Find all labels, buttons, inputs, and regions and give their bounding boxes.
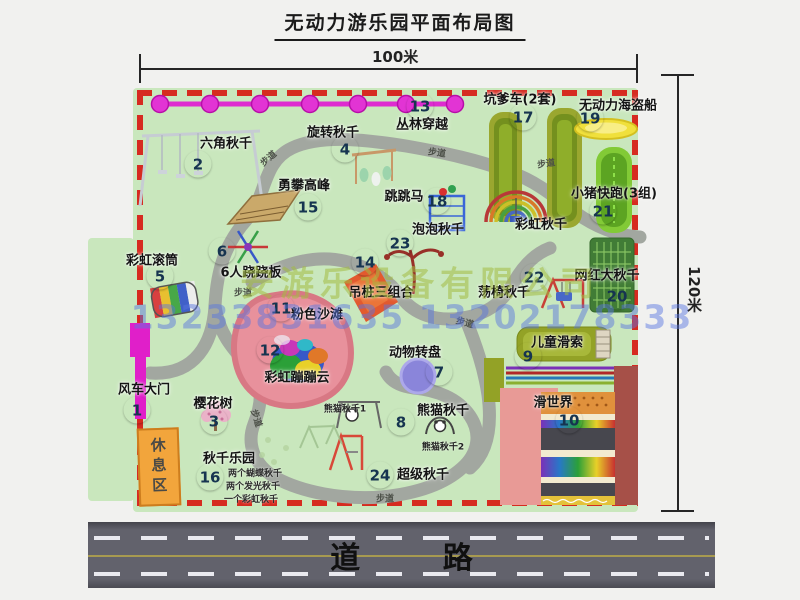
attraction-badge-21: 21 — [590, 198, 617, 225]
attraction-label-jump-horse: 跳跳马 — [384, 186, 423, 205]
attraction-badge-10: 10 — [556, 407, 583, 434]
attraction-label-pig-run: 小猪快跑(3组) — [571, 183, 657, 202]
park-ground-left-extension — [88, 238, 134, 501]
dimension-width-label: 100米 — [372, 46, 418, 67]
attraction-badge-19: 19 — [577, 105, 604, 132]
dimension-tick-right-top — [661, 74, 694, 76]
attraction-badge-23: 23 — [387, 230, 414, 257]
attraction-badge-16: 16 — [197, 464, 224, 491]
swing-park-note-2: 两个发光秋千 — [226, 479, 280, 492]
dimension-line-top — [140, 68, 638, 70]
dimension-tick-top-left — [139, 54, 141, 83]
attraction-label-hexagon-swing: 六角秋千 — [200, 133, 252, 152]
attraction-badge-8: 8 — [388, 409, 415, 436]
attraction-badge-12: 12 — [257, 337, 284, 364]
attraction-badge-6: 6 — [209, 238, 236, 265]
panda-swing-1-label: 熊猫秋千1 — [324, 402, 366, 415]
page-title: 无动力游乐园平面布局图 — [274, 7, 525, 41]
attraction-badge-24: 24 — [367, 462, 394, 489]
swing-park-note-1: 两个蝴蝶秋千 — [228, 466, 282, 479]
park-layout-map: 无动力游乐园平面布局图 100米 120米 — [0, 0, 800, 600]
attraction-label-animal-turntable: 动物转盘 — [389, 342, 441, 361]
dimension-line-right — [677, 75, 679, 512]
trail-label: 步道 — [427, 144, 447, 159]
rest-area-box: 休息区 — [137, 427, 182, 506]
swing-park-note-3: 一个彩虹秋千 — [224, 492, 278, 505]
attraction-badge-2: 2 — [185, 151, 212, 178]
attraction-label-rainbow-swing: 彩虹秋千 — [515, 214, 567, 233]
trail-label: 步道 — [536, 155, 556, 170]
attraction-label-panda-swing: 熊猫秋千 — [417, 400, 469, 419]
boundary-top — [137, 90, 638, 96]
attraction-badge-9: 9 — [515, 343, 542, 370]
rest-area-label: 休息区 — [147, 437, 170, 498]
watermark-phone: 13233831635 13202178333 — [131, 298, 694, 337]
attraction-badge-18: 18 — [424, 188, 451, 215]
attraction-badge-5: 5 — [147, 263, 174, 290]
attraction-label-climbing-peak: 勇攀高峰 — [278, 175, 330, 194]
attraction-label-bubble-swing: 泡泡秋千 — [412, 219, 464, 238]
attraction-badge-7: 7 — [426, 359, 453, 386]
attraction-badge-15: 15 — [295, 194, 322, 221]
dimension-tick-top-right — [636, 54, 638, 83]
attraction-label-rainbow-cloud: 彩虹蹦蹦云 — [264, 367, 329, 386]
attraction-badge-13: 13 — [407, 93, 434, 120]
panda-swing-2-label: 熊猫秋千2 — [422, 440, 464, 453]
attraction-badge-4: 4 — [332, 136, 359, 163]
trail-label: 步道 — [376, 492, 394, 505]
road-label: 道 路 — [294, 533, 508, 577]
attraction-badge-1: 1 — [124, 397, 151, 424]
road: 道 路 — [88, 522, 715, 588]
attraction-label-windmill-gate: 风车大门 — [118, 379, 170, 398]
attraction-badge-17: 17 — [510, 104, 537, 131]
attraction-label-super-swing: 超级秋千 — [397, 464, 449, 483]
attraction-badge-3: 3 — [201, 408, 228, 435]
dimension-tick-right-bottom — [661, 510, 694, 512]
